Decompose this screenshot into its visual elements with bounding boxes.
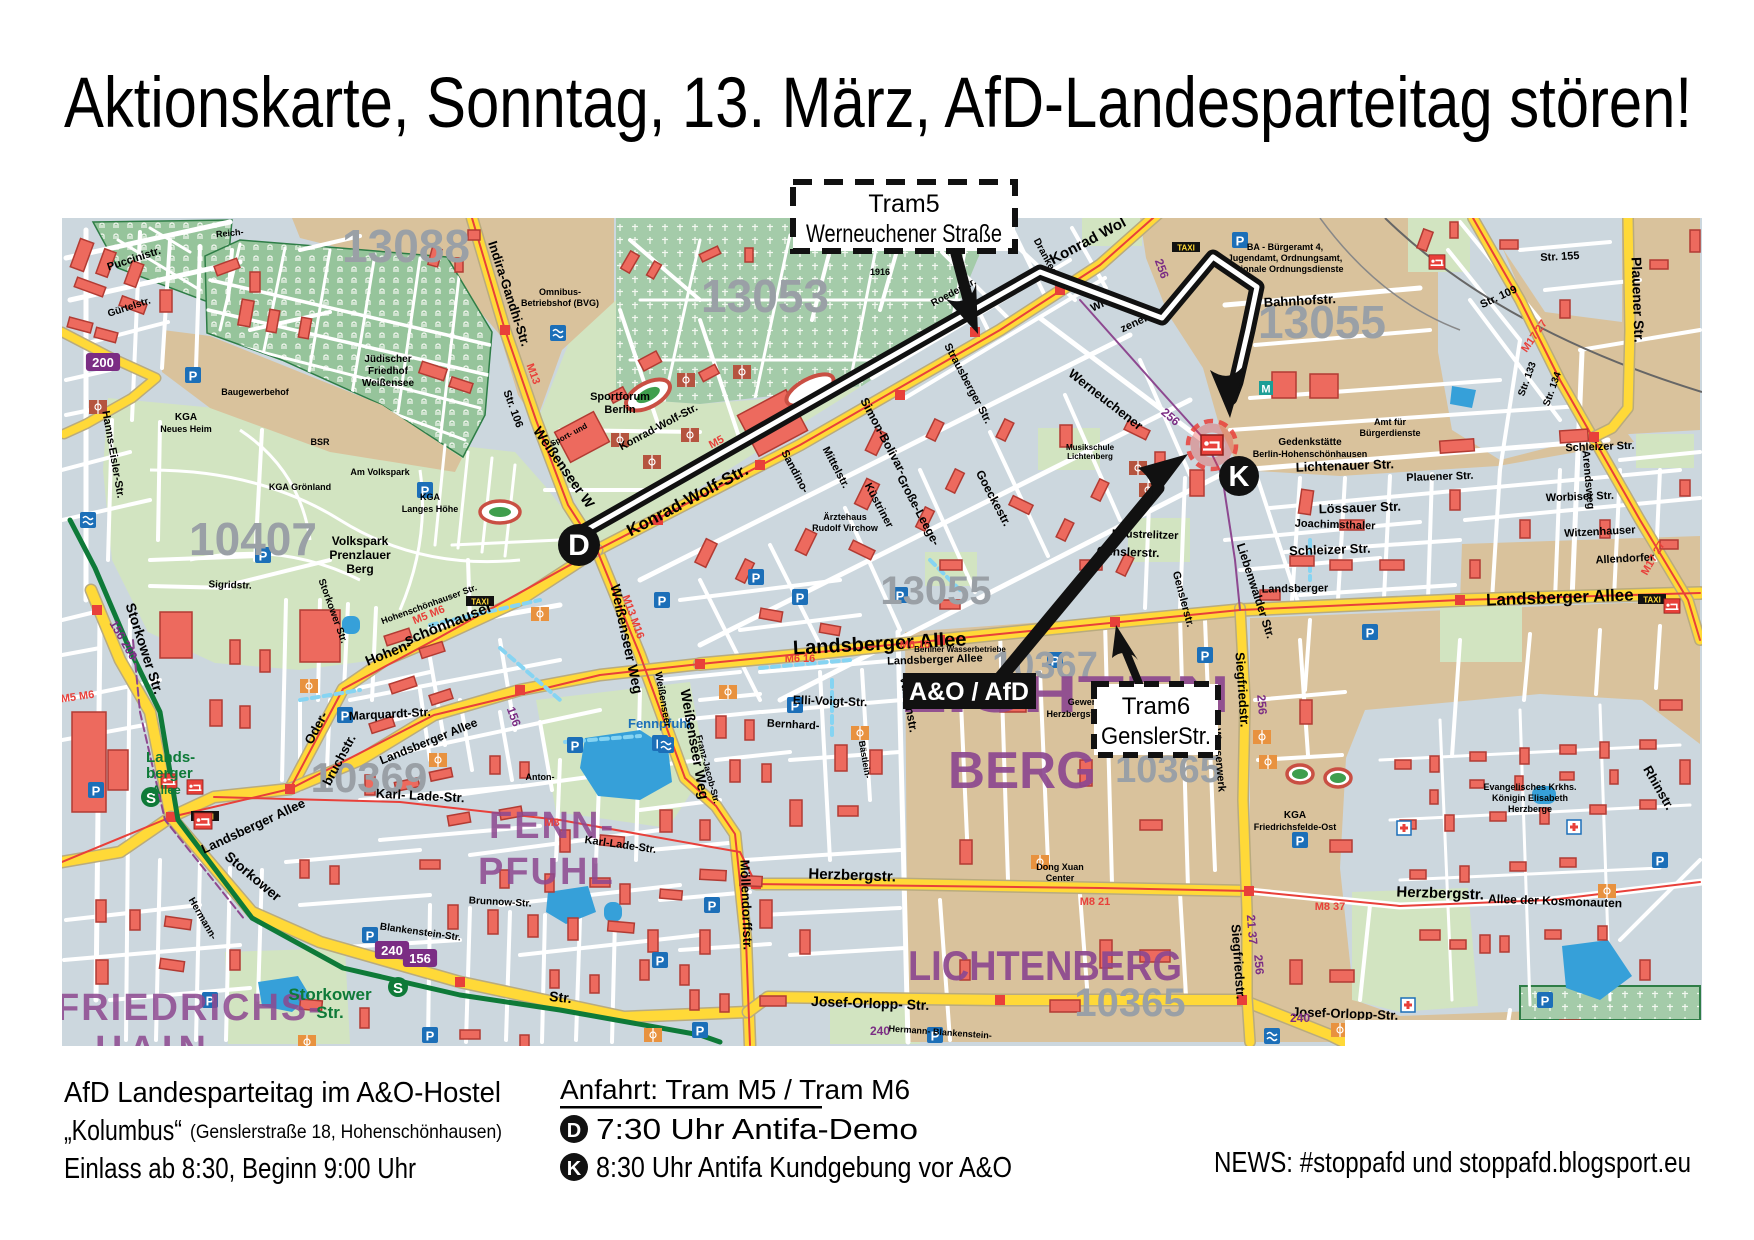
svg-text:P: P — [1366, 626, 1375, 641]
svg-text:BERG: BERG — [948, 742, 1096, 800]
svg-text:D: D — [568, 529, 590, 562]
svg-text:NEWS: #stoppafd und stoppafd.b: NEWS: #stoppafd und stoppafd.blogsport.e… — [1214, 1147, 1691, 1179]
svg-text:P: P — [571, 739, 580, 754]
svg-text:Neues Heim: Neues Heim — [160, 424, 212, 434]
svg-text:Lands-: Lands- — [146, 749, 195, 766]
svg-text:156: 156 — [409, 951, 431, 966]
svg-text:Elli-Voigt-Str.: Elli-Voigt-Str. — [793, 693, 868, 710]
svg-text:Sigridstr.: Sigridstr. — [208, 579, 252, 592]
svg-text:P: P — [752, 571, 761, 586]
svg-text:Plauener Str.: Plauener Str. — [1406, 470, 1474, 484]
svg-text:Langes Höhe: Langes Höhe — [402, 504, 459, 514]
svg-text:240: 240 — [1290, 1011, 1310, 1025]
svg-text:Jugendamt, Ordnungsamt,: Jugendamt, Ordnungsamt, — [1228, 253, 1343, 263]
svg-text:Schleizer Str.: Schleizer Str. — [1289, 541, 1371, 559]
svg-text:7:30 Uhr Antifa-Demo: 7:30 Uhr Antifa-Demo — [596, 1114, 918, 1146]
svg-text:Musikschule: Musikschule — [1066, 443, 1115, 452]
svg-text:Sportforum: Sportforum — [590, 391, 650, 403]
svg-text:Storkower: Storkower — [288, 985, 372, 1004]
svg-text:AfD Landesparteitag im A&O-Hos: AfD Landesparteitag im A&O-Hostel — [64, 1077, 501, 1109]
svg-text:Landsberger: Landsberger — [1262, 582, 1330, 595]
svg-text:TAXI: TAXI — [1177, 244, 1195, 253]
svg-text:Betriebshof (BVG): Betriebshof (BVG) — [521, 298, 599, 308]
svg-text:240: 240 — [381, 943, 403, 958]
svg-text:Tram6: Tram6 — [1122, 693, 1190, 720]
svg-text:Berlin: Berlin — [604, 404, 635, 416]
svg-text:Aktionskarte, Sonntag, 13. Mär: Aktionskarte, Sonntag, 13. März, AfD-Lan… — [64, 64, 1692, 143]
svg-text:P: P — [189, 369, 198, 384]
svg-text:Bürgerdienste: Bürgerdienste — [1359, 428, 1420, 438]
svg-text:P: P — [796, 591, 805, 606]
svg-text:PFUHL: PFUHL — [478, 851, 615, 893]
svg-text:KGA: KGA — [420, 492, 441, 502]
svg-text:200: 200 — [92, 355, 114, 370]
svg-text:Allee: Allee — [152, 783, 181, 797]
svg-text:P: P — [1541, 994, 1550, 1009]
svg-text:„Kolumbus“: „Kolumbus“ — [64, 1115, 182, 1147]
svg-text:Lössauer Str.: Lössauer Str. — [1318, 499, 1401, 517]
svg-text:1916: 1916 — [870, 267, 890, 277]
svg-text:240: 240 — [870, 1024, 890, 1038]
svg-text:Einlass ab 8:30, Beginn 9:00 U: Einlass ab 8:30, Beginn 9:00 Uhr — [64, 1153, 416, 1185]
svg-text:13053: 13053 — [701, 270, 829, 322]
svg-text:D: D — [567, 1120, 581, 1142]
svg-text:Berlin-Hohenschönhausen: Berlin-Hohenschönhausen — [1253, 449, 1368, 459]
svg-text:Möllendorffstr.: Möllendorffstr. — [737, 859, 755, 950]
svg-text:LICHTENBERG: LICHTENBERG — [908, 942, 1182, 989]
svg-text:Worbiser Str.: Worbiser Str. — [1546, 490, 1615, 504]
svg-text:BSR: BSR — [310, 437, 330, 447]
svg-text:Schleizer Str.: Schleizer Str. — [1565, 440, 1634, 454]
svg-text:Friedhof: Friedhof — [368, 366, 409, 377]
svg-text:13088: 13088 — [342, 220, 470, 272]
svg-text:Rudolf Virchow: Rudolf Virchow — [812, 523, 879, 533]
svg-text:FRIEDRICHS-: FRIEDRICHS- — [56, 987, 323, 1029]
svg-text:Jüdischer: Jüdischer — [364, 354, 411, 365]
svg-text:P: P — [366, 929, 375, 944]
svg-text:P: P — [1296, 834, 1305, 849]
svg-text:21 37: 21 37 — [1244, 914, 1261, 945]
svg-text:Lichtenberg: Lichtenberg — [1067, 452, 1113, 461]
svg-text:M8 21: M8 21 — [1080, 896, 1111, 908]
svg-text:Prenzlauer: Prenzlauer — [329, 548, 391, 562]
svg-text:K: K — [1229, 461, 1250, 493]
svg-text:Center: Center — [1046, 873, 1075, 883]
svg-text:M8: M8 — [544, 817, 559, 829]
svg-text:Amt für: Amt für — [1374, 417, 1406, 427]
svg-text:M: M — [1261, 384, 1270, 396]
svg-text:13055: 13055 — [880, 569, 991, 613]
svg-text:Ärztehaus: Ärztehaus — [823, 512, 867, 522]
svg-text:P: P — [1656, 854, 1665, 869]
svg-text:KGA Grönland: KGA Grönland — [269, 482, 331, 492]
svg-text:K: K — [567, 1158, 582, 1180]
svg-text:Volkspark: Volkspark — [332, 534, 389, 548]
svg-text:Herzbergstr.: Herzbergstr. — [808, 865, 896, 885]
svg-text:P: P — [656, 954, 665, 969]
svg-text:Anton-: Anton- — [526, 772, 555, 782]
svg-text:P: P — [92, 784, 101, 799]
svg-text:BA - Bürgeramt 4,: BA - Bürgeramt 4, — [1247, 242, 1323, 252]
svg-text:Weißensee: Weißensee — [362, 378, 414, 389]
svg-text:M6 16: M6 16 — [785, 653, 816, 665]
svg-text:Omnibus-: Omnibus- — [539, 287, 581, 297]
svg-text:Am Volkspark: Am Volkspark — [350, 467, 410, 477]
svg-text:256: 256 — [1254, 694, 1270, 715]
svg-text:P: P — [708, 899, 717, 914]
svg-text:Baugewerbehof: Baugewerbehof — [221, 387, 290, 397]
svg-text:Werneuchener Straße: Werneuchener Straße — [806, 220, 1002, 248]
svg-text:Herzberge: Herzberge — [1508, 804, 1552, 814]
svg-text:GenslerStr.: GenslerStr. — [1101, 723, 1211, 750]
svg-text:Gedenkstätte: Gedenkstätte — [1278, 437, 1342, 448]
svg-text:P: P — [696, 1024, 705, 1039]
svg-text:M6 16: M6 16 — [900, 639, 931, 651]
svg-text:Str.: Str. — [316, 1003, 343, 1022]
svg-text:KGA: KGA — [175, 412, 197, 423]
svg-text:Evangelisches Krkhs.: Evangelisches Krkhs. — [1483, 782, 1576, 792]
svg-text:Str.: Str. — [548, 988, 572, 1006]
svg-text:256: 256 — [1251, 954, 1267, 975]
svg-text:Str. 155: Str. 155 — [1540, 250, 1580, 264]
svg-text:M8 37: M8 37 — [1315, 901, 1346, 913]
svg-text:Tram5: Tram5 — [868, 190, 939, 218]
svg-text:Berg: Berg — [346, 562, 373, 576]
svg-text:P: P — [426, 1029, 435, 1044]
svg-text:Königin Elisabeth: Königin Elisabeth — [1492, 793, 1568, 803]
svg-text:(Genslerstraße 18, Hohenschönh: (Genslerstraße 18, Hohenschönhausen) — [190, 1122, 502, 1143]
svg-text:Herzbergstr.: Herzbergstr. — [1396, 883, 1484, 903]
svg-text:Plauener Str.: Plauener Str. — [1629, 257, 1648, 343]
svg-text:berger: berger — [146, 765, 193, 782]
svg-text:Fennpfuhl: Fennpfuhl — [628, 716, 691, 731]
svg-text:P: P — [1201, 649, 1210, 664]
svg-text:Dong Xuan: Dong Xuan — [1036, 862, 1084, 872]
svg-text:8:30 Uhr Antifa Kundgebung vor: 8:30 Uhr Antifa Kundgebung vor A&O — [596, 1152, 1012, 1184]
svg-text:10407: 10407 — [189, 513, 317, 565]
svg-text:KGA: KGA — [1284, 810, 1306, 821]
svg-text:A&O / AfD: A&O / AfD — [909, 678, 1029, 706]
svg-text:TAXI: TAXI — [1643, 596, 1661, 605]
svg-text:S: S — [393, 980, 403, 997]
svg-text:Friedrichsfelde-Ost: Friedrichsfelde-Ost — [1254, 822, 1337, 832]
svg-text:P: P — [658, 594, 667, 609]
svg-text:Anfahrt: Tram M5 / Tram M6: Anfahrt: Tram M5 / Tram M6 — [560, 1074, 910, 1105]
svg-text:P: P — [1236, 234, 1245, 249]
